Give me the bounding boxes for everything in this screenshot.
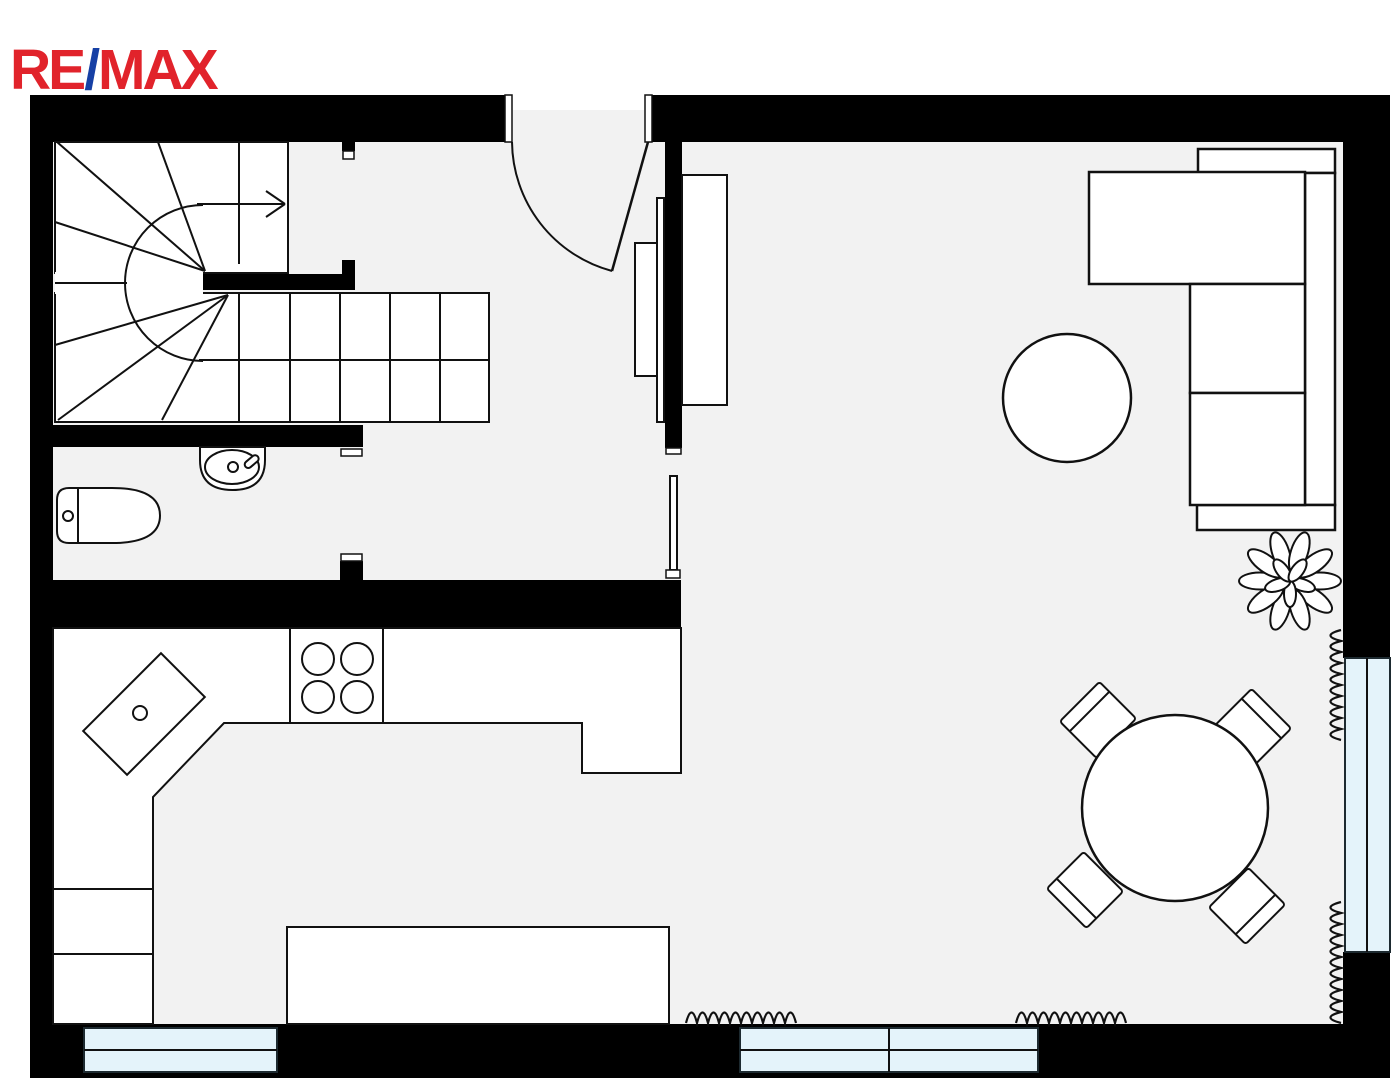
logo-re: RE bbox=[10, 38, 83, 102]
wall-kitchen-divider bbox=[30, 580, 681, 628]
sofa-seat bbox=[1190, 393, 1305, 505]
tv-sideboard bbox=[682, 175, 727, 405]
sofa-armrest-bottom bbox=[1197, 505, 1335, 530]
hall-cabinet bbox=[635, 243, 657, 376]
wall-top-right bbox=[651, 95, 1390, 142]
bathroom-doorway-jamb-top bbox=[341, 449, 362, 456]
logo-slash-icon: / bbox=[83, 38, 98, 102]
toilet bbox=[57, 488, 160, 543]
window-right bbox=[1345, 658, 1390, 952]
dining-table bbox=[1082, 715, 1268, 901]
entry-threshold bbox=[512, 118, 645, 144]
floor-plan-page: RE/MAX bbox=[0, 0, 1399, 1080]
sofa-seat bbox=[1190, 284, 1305, 393]
floor-plan-drawing bbox=[0, 0, 1399, 1080]
interior-door-stop bbox=[666, 570, 680, 578]
wall-right-upper bbox=[1343, 95, 1390, 658]
sofa-chaise bbox=[1089, 172, 1305, 284]
burner bbox=[341, 681, 373, 713]
kitchen-island bbox=[287, 927, 669, 1024]
wall-bathroom-top bbox=[30, 425, 363, 447]
window-bottom-middle bbox=[740, 1028, 1038, 1072]
entry-door-jamb-left bbox=[505, 95, 512, 142]
wash-basin bbox=[200, 447, 265, 490]
interior-door-leaf bbox=[670, 476, 677, 570]
interior-door-jamb bbox=[666, 448, 681, 454]
sofa-backrest bbox=[1305, 173, 1335, 505]
entry-door-jamb-right bbox=[645, 95, 652, 142]
wall-bathroom-right-lower bbox=[340, 561, 363, 582]
bathroom-doorway-jamb-bottom bbox=[341, 554, 362, 561]
sliding-door-panel bbox=[657, 198, 664, 422]
wall-tv-partition bbox=[665, 142, 682, 448]
stair-upper-flight bbox=[55, 142, 288, 273]
sofa-armrest-top bbox=[1198, 149, 1335, 173]
burner bbox=[302, 681, 334, 713]
window-bottom-left bbox=[84, 1028, 277, 1072]
cooktop bbox=[290, 628, 383, 723]
burner bbox=[341, 643, 373, 675]
stair-lower-flight bbox=[55, 293, 489, 422]
burner bbox=[302, 643, 334, 675]
logo-max: MAX bbox=[98, 38, 216, 102]
stair-doorway-jamb bbox=[343, 151, 354, 159]
remax-logo: RE/MAX bbox=[10, 42, 216, 99]
coffee-table bbox=[1003, 334, 1131, 462]
wall-top-left bbox=[30, 95, 506, 142]
